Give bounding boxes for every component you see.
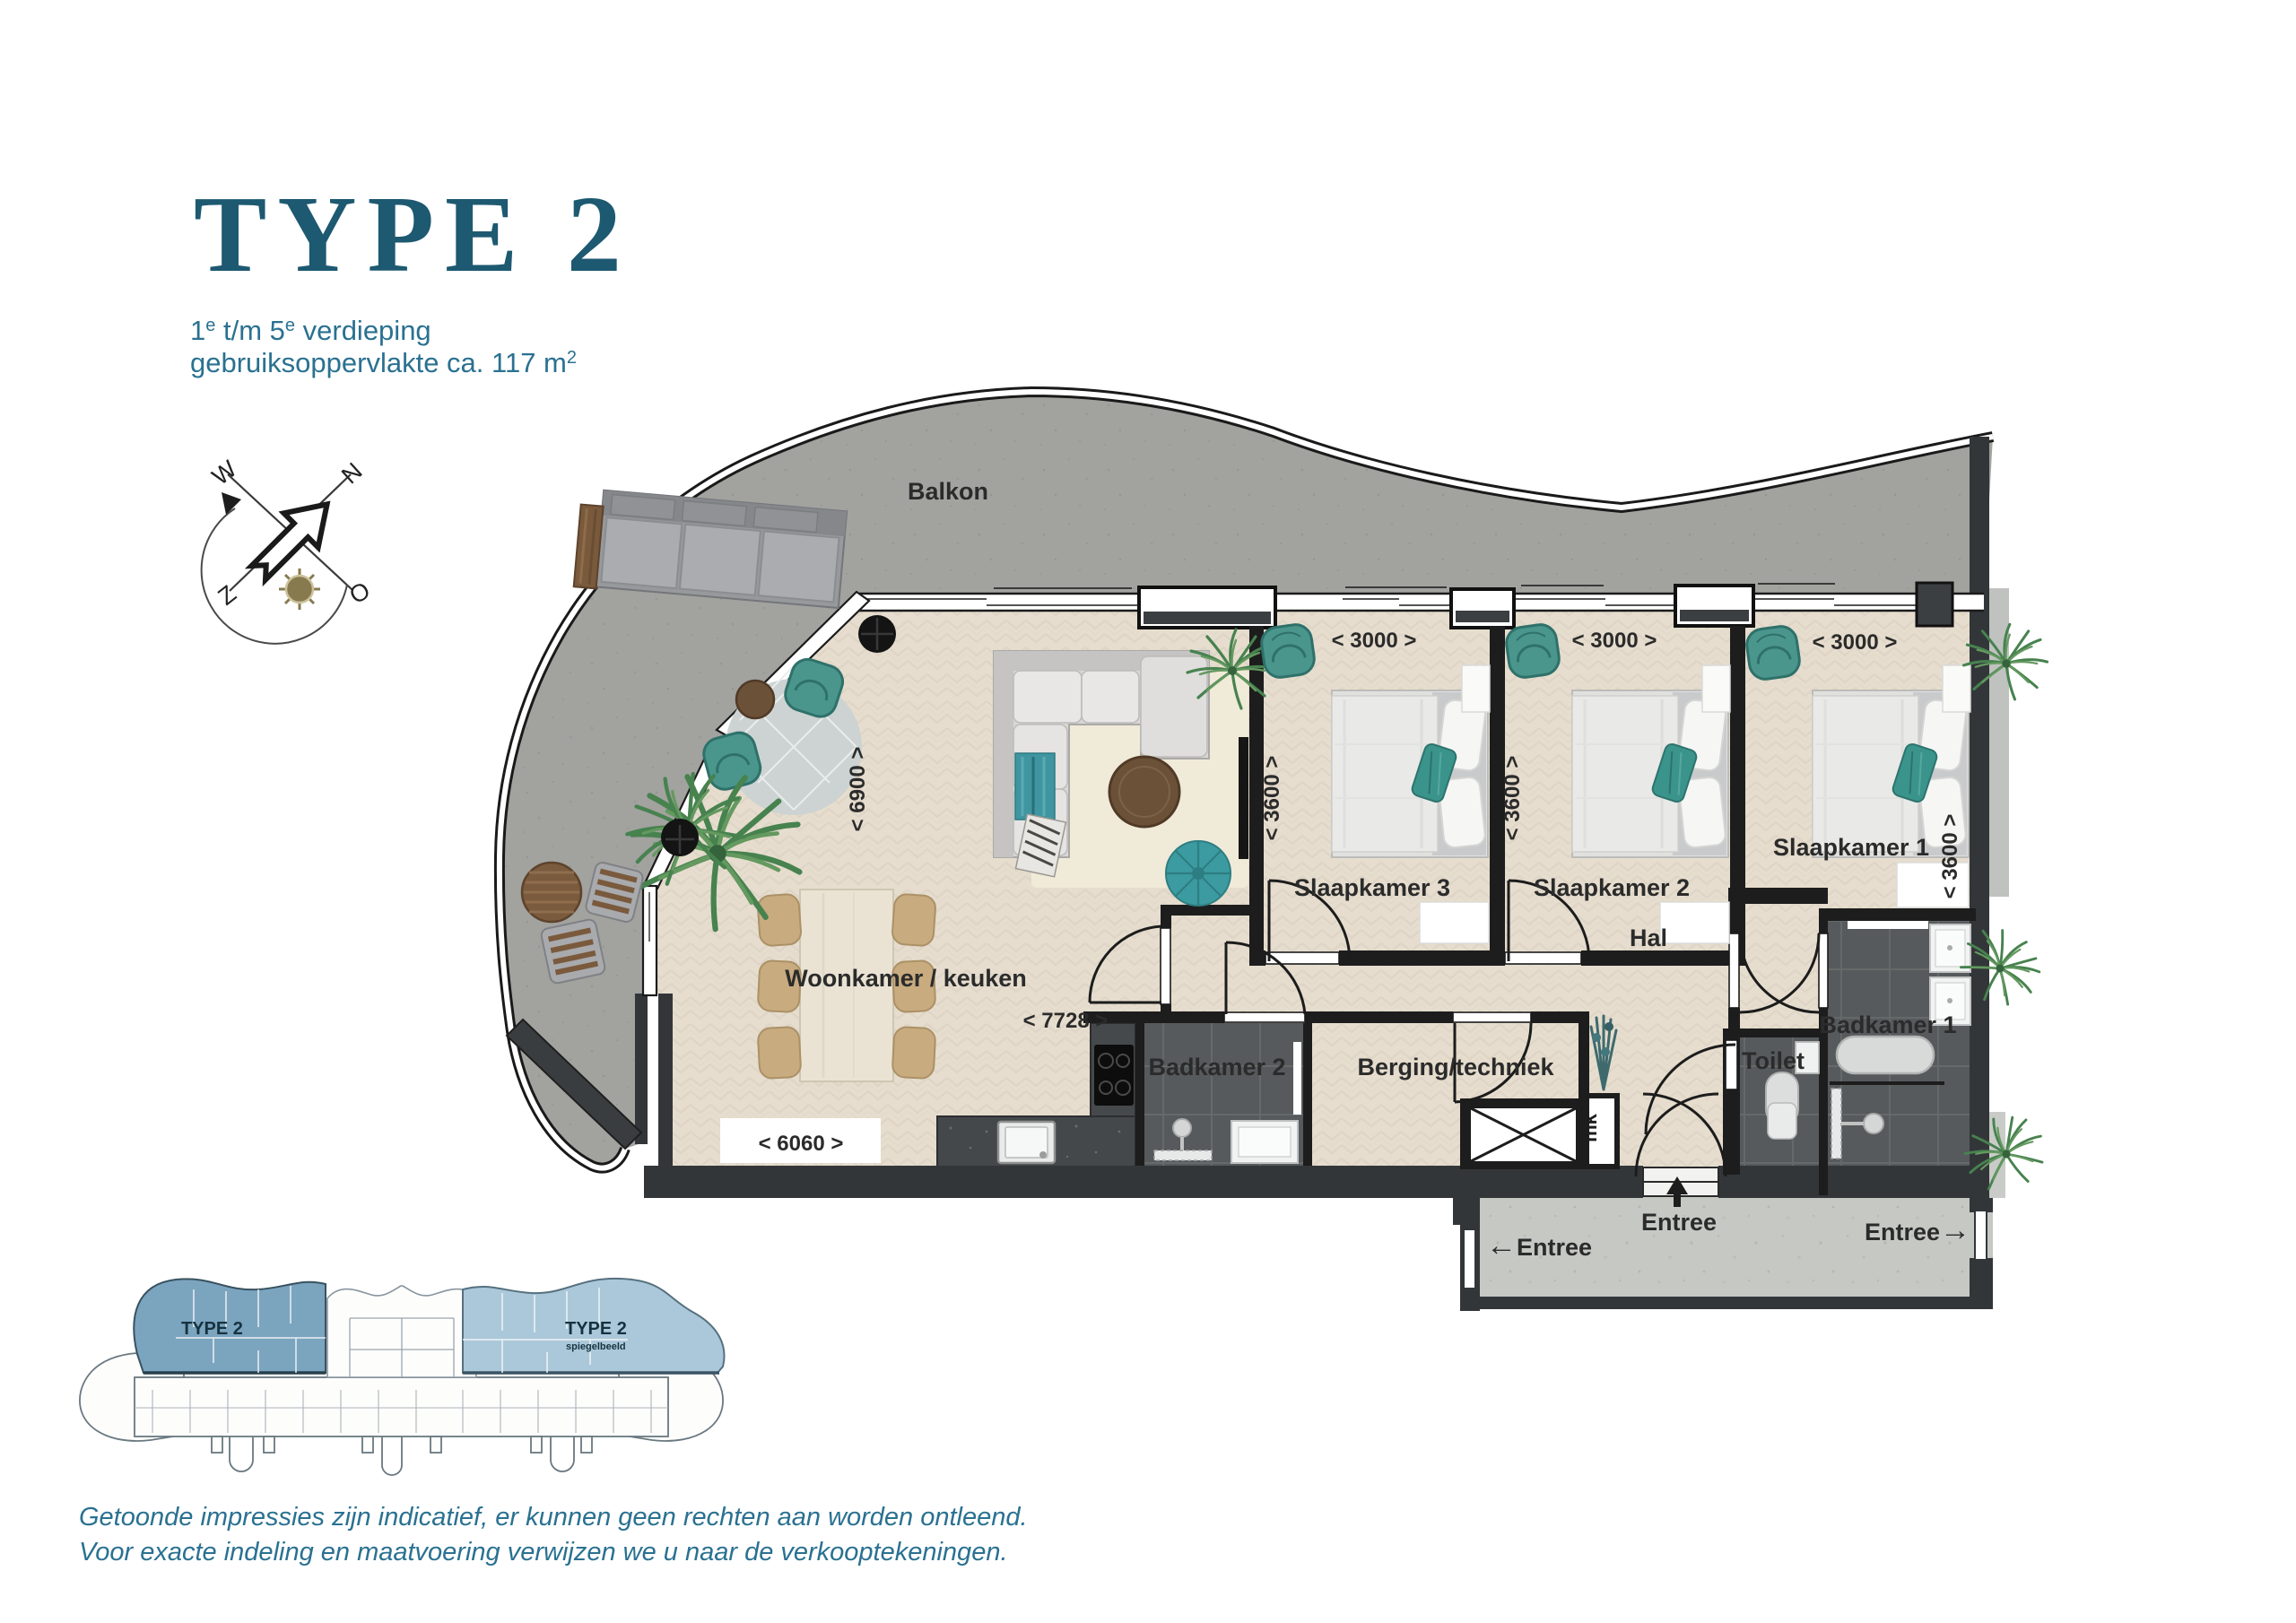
svg-text:Getoonde impressies zijn indic: Getoonde impressies zijn indicatief, er … xyxy=(79,1503,1028,1532)
svg-text:1e t/m 5e verdieping: 1e t/m 5e verdieping xyxy=(190,315,431,346)
svg-text:< 6900 >: < 6900 > xyxy=(846,747,870,832)
svg-text:Badkamer 1: Badkamer 1 xyxy=(1819,1011,1956,1038)
svg-text:Berging/techniek: Berging/techniek xyxy=(1357,1054,1554,1081)
svg-text:Toilet: Toilet xyxy=(1742,1047,1805,1074)
svg-text:< 6060 >: < 6060 > xyxy=(759,1132,844,1156)
svg-text:Woonkamer / keuken: Woonkamer / keuken xyxy=(785,965,1027,992)
svg-text:spiegelbeeld: spiegelbeeld xyxy=(566,1341,626,1352)
svg-text:Badkamer 2: Badkamer 2 xyxy=(1148,1054,1285,1081)
svg-text:< 3000 >: < 3000 > xyxy=(1813,630,1898,655)
svg-text:< 3000 >: < 3000 > xyxy=(1332,629,1417,653)
svg-text:< 3600 >: < 3600 > xyxy=(1500,756,1525,841)
svg-text:gebruiksoppervlakte ca. 117 m2: gebruiksoppervlakte ca. 117 m2 xyxy=(190,347,577,378)
svg-text:mk: mk xyxy=(1578,1113,1601,1142)
svg-text:TYPE 2: TYPE 2 xyxy=(181,1319,243,1339)
svg-text:Entree: Entree xyxy=(1641,1209,1717,1236)
svg-text:Hal: Hal xyxy=(1630,924,1667,951)
svg-text:Slaapkamer 2: Slaapkamer 2 xyxy=(1534,874,1690,901)
svg-text:< 3600 >: < 3600 > xyxy=(1938,814,1962,899)
svg-text:Slaapkamer 1: Slaapkamer 1 xyxy=(1773,834,1929,861)
svg-text:TYPE 2: TYPE 2 xyxy=(194,174,632,295)
svg-text:< 3600 >: < 3600 > xyxy=(1260,756,1284,841)
svg-text:< 7728 >: < 7728 > xyxy=(1023,1009,1109,1033)
svg-text:←Entree: ←Entree xyxy=(1486,1228,1592,1263)
svg-text:< 3000 >: < 3000 > xyxy=(1572,629,1657,653)
svg-text:Voor exacte indeling en maatvo: Voor exacte indeling en maatvoering verw… xyxy=(79,1538,1008,1567)
svg-text:Slaapkamer 3: Slaapkamer 3 xyxy=(1294,874,1450,901)
svg-text:Entree→: Entree→ xyxy=(1865,1213,1970,1247)
svg-text:Balkon: Balkon xyxy=(908,478,988,505)
svg-text:TYPE 2: TYPE 2 xyxy=(565,1319,627,1339)
